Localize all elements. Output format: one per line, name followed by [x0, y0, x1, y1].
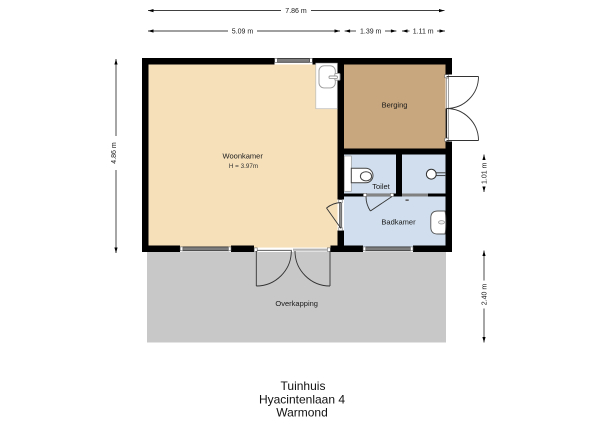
svg-text:Toilet: Toilet — [372, 182, 390, 191]
svg-text:Berging: Berging — [382, 101, 408, 110]
svg-text:2.40 m: 2.40 m — [481, 284, 488, 306]
svg-text:Woonkamer: Woonkamer — [223, 151, 264, 160]
svg-text:7.86 m: 7.86 m — [285, 8, 307, 15]
svg-text:H = 3.97m: H = 3.97m — [229, 163, 258, 170]
svg-text:5.09 m: 5.09 m — [232, 28, 254, 35]
svg-text:1.39 m: 1.39 m — [360, 28, 382, 35]
svg-text:4.86 m: 4.86 m — [111, 142, 118, 164]
svg-text:Badkamer: Badkamer — [381, 218, 416, 227]
svg-text:Overkapping: Overkapping — [275, 299, 318, 308]
svg-text:Hyacintenlaan 4: Hyacintenlaan 4 — [259, 392, 345, 406]
svg-text:Warmond: Warmond — [276, 406, 328, 420]
svg-text:1.01 m: 1.01 m — [481, 162, 488, 184]
svg-text:1.11 m: 1.11 m — [413, 28, 434, 35]
svg-text:Tuinhuis: Tuinhuis — [281, 379, 326, 393]
